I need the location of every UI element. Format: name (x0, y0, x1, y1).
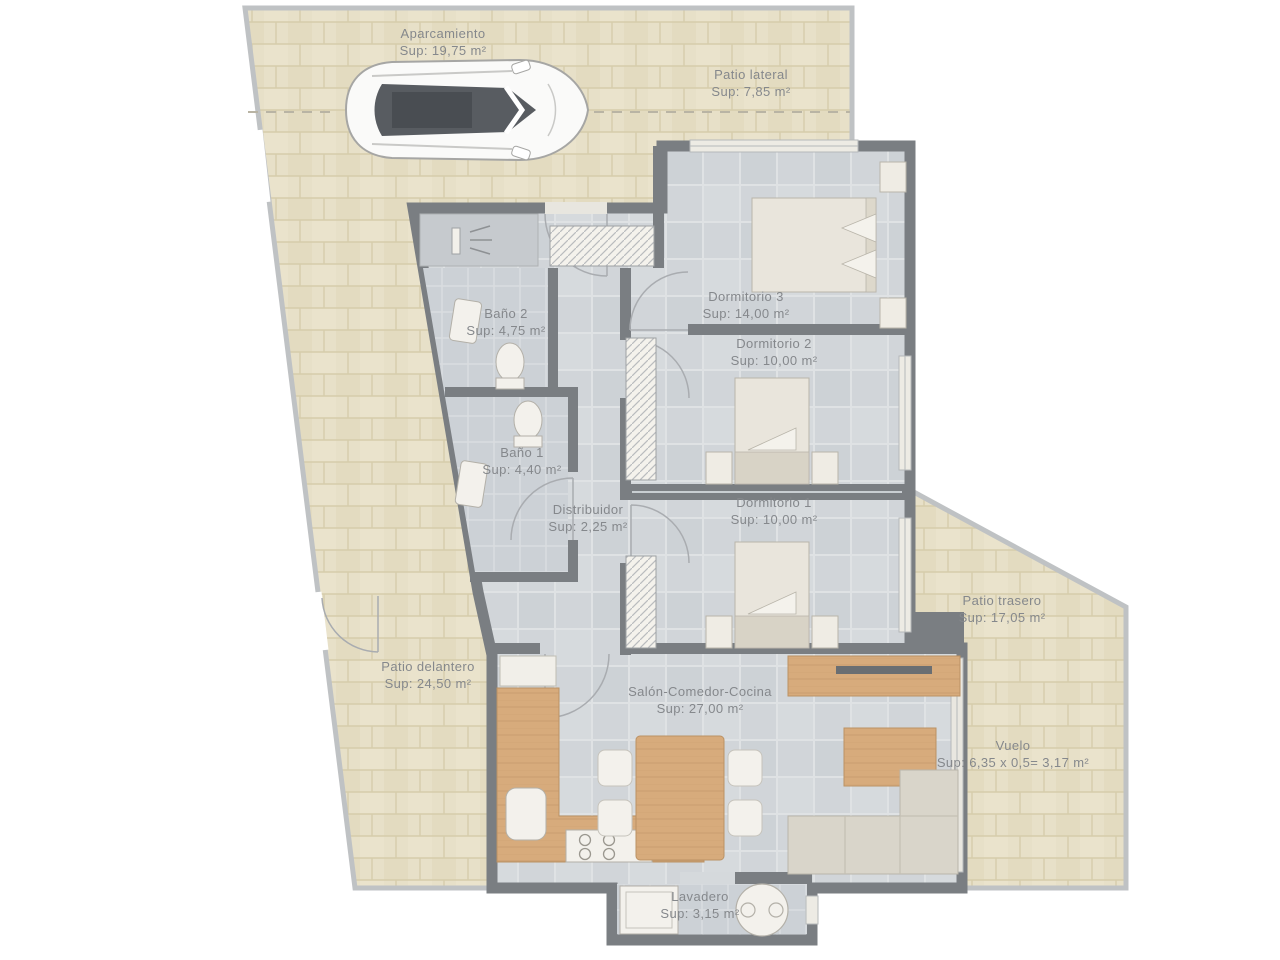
wall-dorm3-dorm2 (688, 324, 910, 335)
window-dorm2 (899, 356, 911, 470)
chair (728, 800, 762, 836)
nightstand (812, 616, 838, 648)
fridge (500, 656, 556, 686)
wall-bath2-east (548, 268, 558, 392)
entry-door-opening (545, 202, 607, 214)
room-label-salon: Salón-Comedor-Cocina Sup: 27,00 m² (628, 684, 772, 718)
room-label-patio-delantero: Patio delantero Sup: 24,50 m² (381, 659, 474, 693)
wardrobe (626, 338, 656, 480)
room-label-vuelo: Vuelo Sup: 6,35 x 0,5= 3,17 m² (937, 738, 1089, 772)
room-label-lavadero: Lavadero Sup: 3,15 m² (660, 889, 739, 923)
nightstand (706, 616, 732, 648)
nightstand (880, 298, 906, 328)
chair (598, 750, 632, 786)
wardrobe (626, 556, 656, 648)
tv-sideboard (788, 656, 960, 696)
room-label-patio-lateral: Patio lateral Sup: 7,85 m² (711, 67, 790, 101)
wall-gap-line (632, 491, 902, 493)
room-label-distribuidor: Distribuidor Sup: 2,25 m² (548, 502, 627, 536)
chair (728, 750, 762, 786)
wall-bath1-south (470, 572, 578, 582)
laundry-opening (680, 872, 735, 884)
room-label-bano-1: Baño 1 Sup: 4,40 m² (482, 445, 561, 479)
tv-icon (836, 666, 932, 674)
shower-icon (420, 214, 538, 266)
window-laundry (806, 896, 818, 924)
room-label-dormitorio-2: Dormitorio 2 Sup: 10,00 m² (731, 336, 818, 370)
room-label-bano-2: Baño 2 Sup: 4,75 m² (466, 306, 545, 340)
room-label-aparcamiento: Aparcamiento Sup: 19,75 m² (400, 26, 487, 60)
wall-salon-north-west (492, 643, 540, 654)
room-label-dormitorio-3: Dormitorio 3 Sup: 14,00 m² (703, 289, 790, 323)
hall-closet (550, 226, 654, 266)
room-label-patio-trasero: Patio trasero Sup: 17,05 m² (959, 593, 1046, 627)
round-sink-icon (736, 884, 788, 936)
room-label-dormitorio-1: Dormitorio 1 Sup: 10,00 m² (731, 495, 818, 529)
wall-bath1-east-a (568, 392, 578, 472)
nightstand (880, 162, 906, 192)
kitchen-sink-icon (506, 788, 546, 840)
car-icon (346, 59, 588, 160)
toilet-icon-2 (514, 401, 542, 447)
window-dorm1 (899, 518, 911, 632)
floor-plan-drawing (0, 0, 1280, 960)
floor-plan-canvas: Aparcamiento Sup: 19,75 m² Patio lateral… (0, 0, 1280, 960)
toilet-icon (496, 343, 524, 389)
wall-dorm3-west (653, 146, 664, 268)
nightstand (706, 452, 732, 484)
chair (598, 800, 632, 836)
window-patio-lateral (690, 140, 858, 152)
nightstand (812, 452, 838, 484)
